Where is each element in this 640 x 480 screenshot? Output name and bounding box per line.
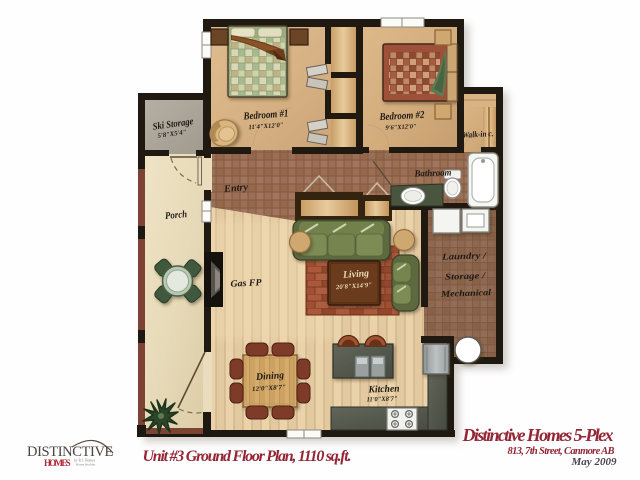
- svg-text:Home Builder: Home Builder: [76, 463, 96, 467]
- svg-text:Walk-in c.: Walk-in c.: [462, 128, 493, 140]
- svg-text:Dining: Dining: [255, 370, 285, 383]
- svg-text:Unit #3 Ground Floor Plan, 111: Unit #3 Ground Floor Plan, 1110 sq.ft.: [143, 448, 352, 465]
- svg-text:11'0"X8'7": 11'0"X8'7": [366, 395, 398, 403]
- svg-text:Kitchen: Kitchen: [367, 383, 400, 395]
- svg-text:Bathroom: Bathroom: [413, 168, 451, 179]
- svg-text:HOMES: HOMES: [44, 458, 72, 468]
- svg-text:Living: Living: [342, 268, 370, 281]
- svg-text:Laundry /: Laundry /: [441, 250, 488, 262]
- svg-text:Distinctive Homes 5-Plex: Distinctive Homes 5-Plex: [462, 425, 614, 445]
- svg-text:Gas FP: Gas FP: [230, 278, 262, 290]
- svg-text:Porch: Porch: [165, 209, 188, 222]
- svg-text:Mechanical: Mechanical: [440, 287, 492, 299]
- svg-text:Storage /: Storage /: [445, 270, 487, 281]
- svg-text:May 2009: May 2009: [571, 456, 617, 468]
